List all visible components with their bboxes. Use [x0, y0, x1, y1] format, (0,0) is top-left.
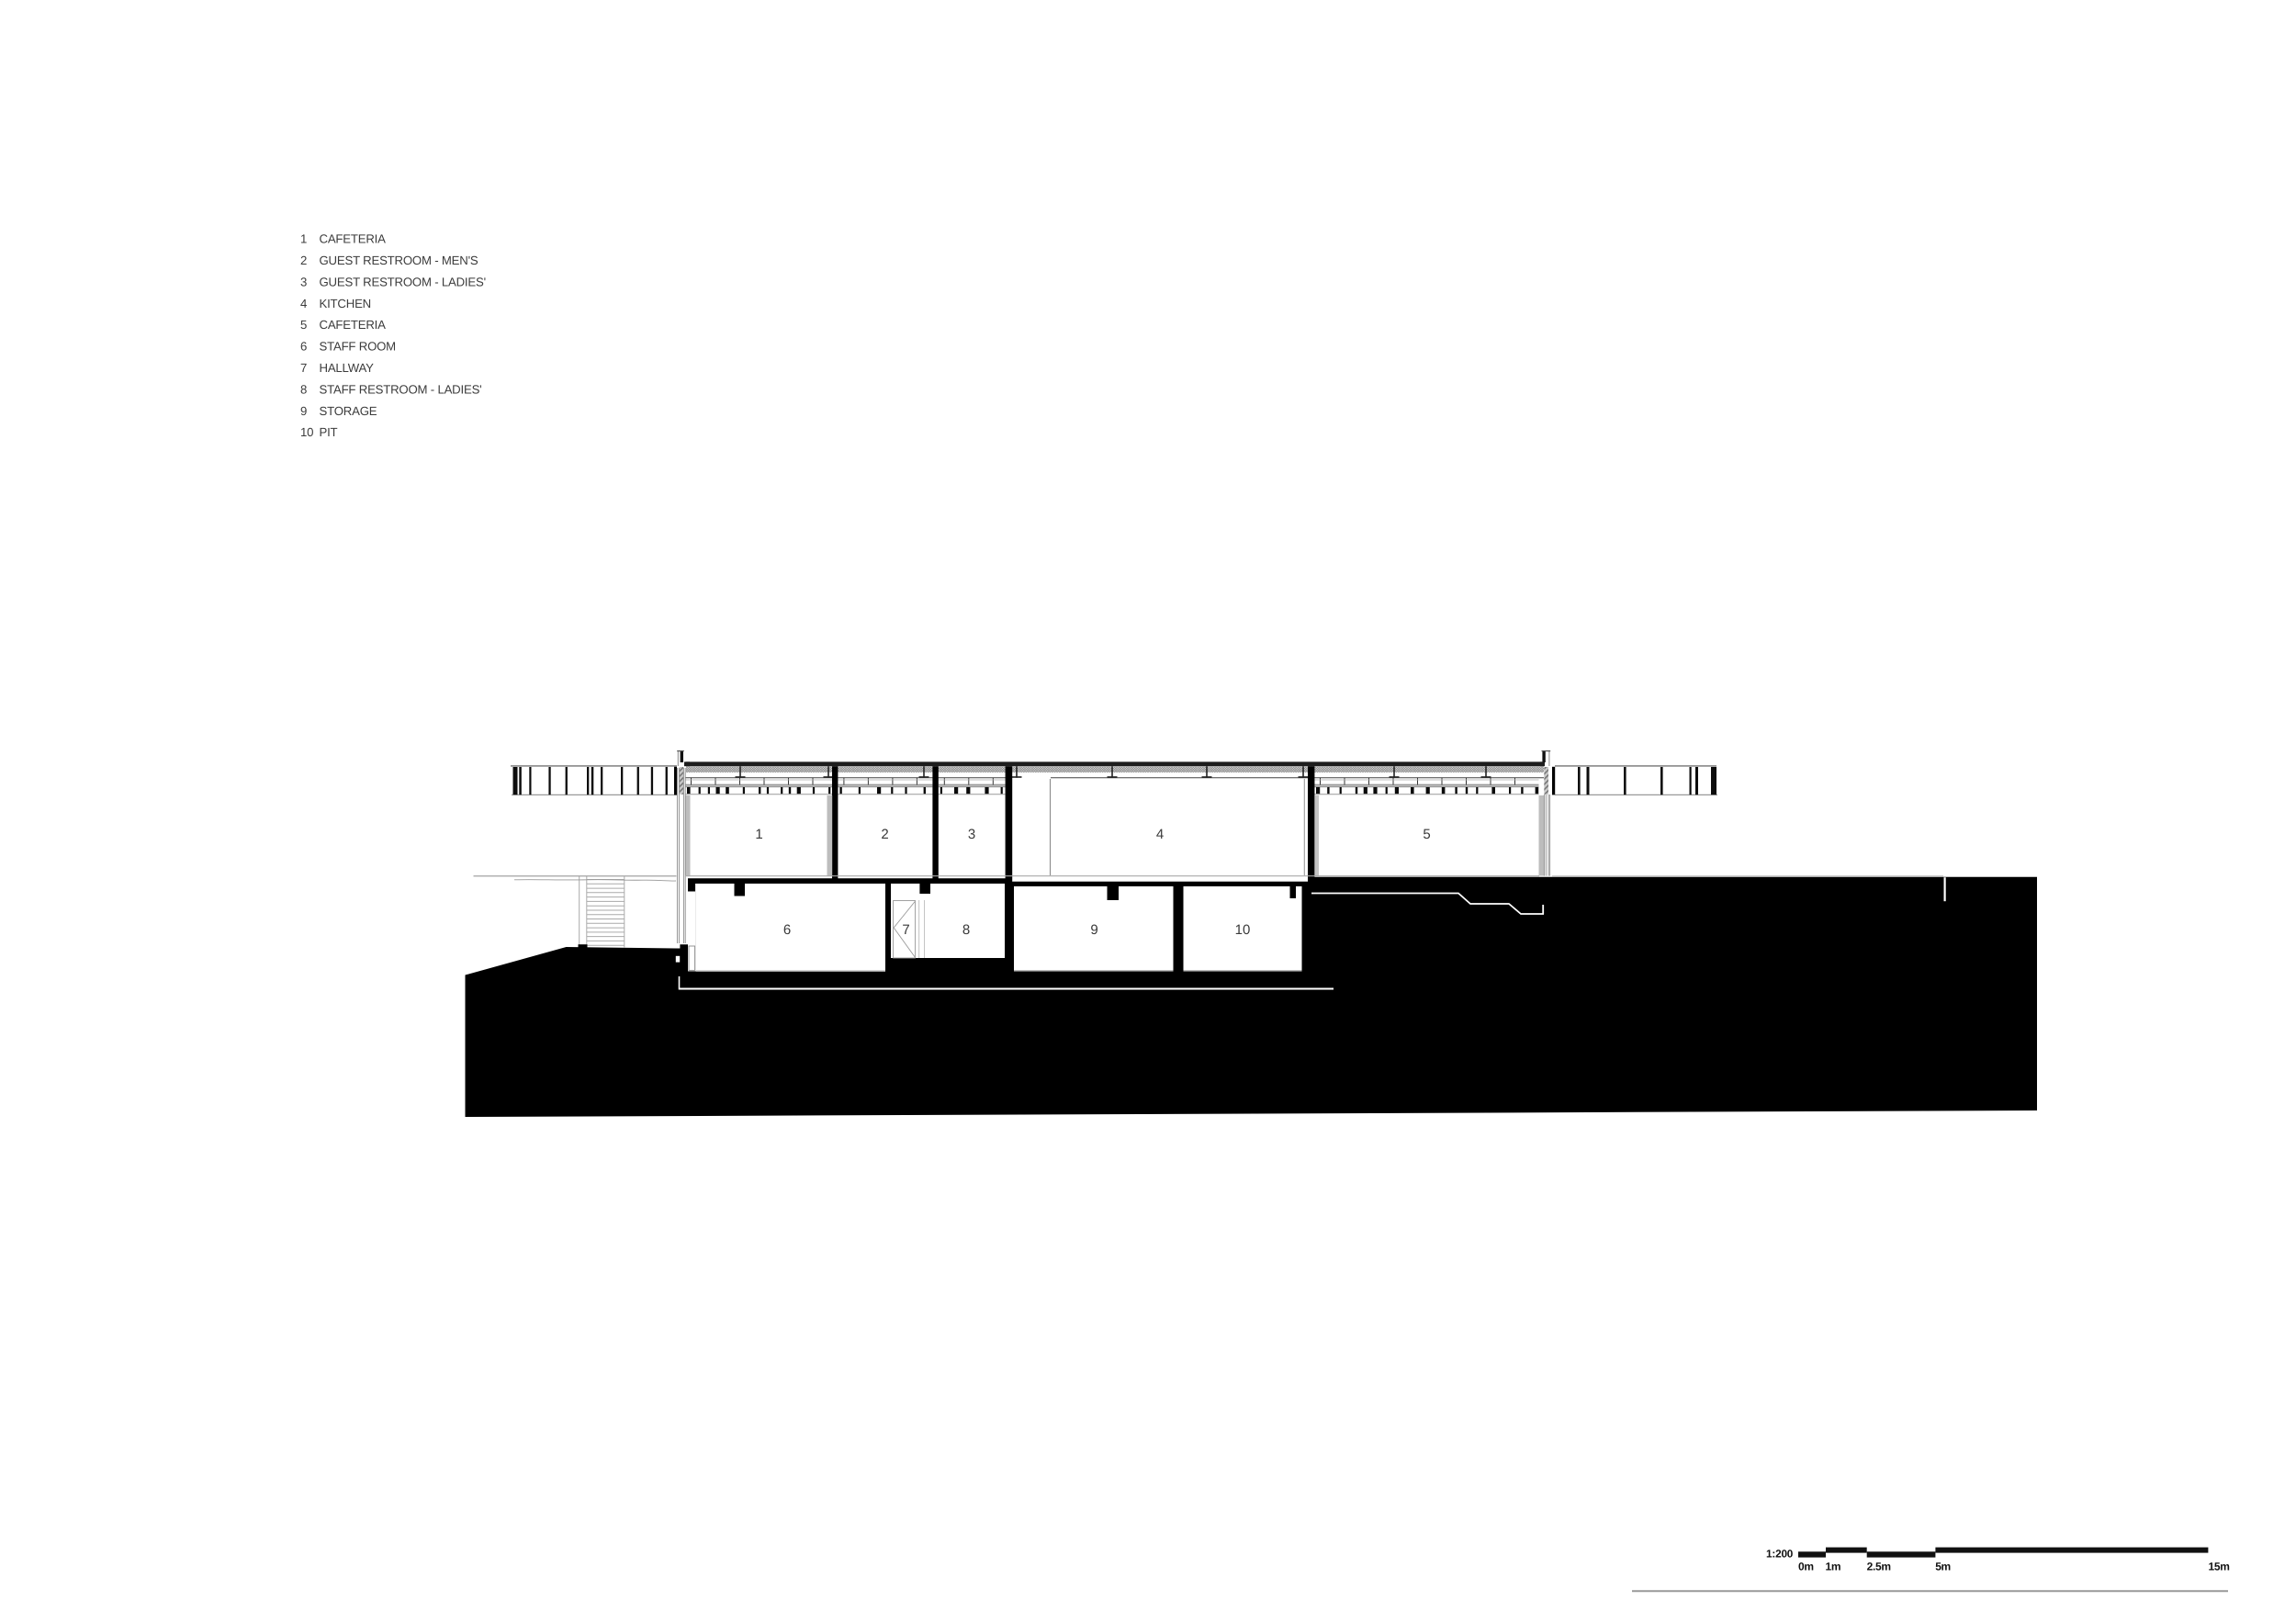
svg-text:2: 2 [881, 827, 888, 842]
svg-text:HALLWAY: HALLWAY [320, 361, 375, 375]
svg-text:CAFETERIA: CAFETERIA [320, 318, 387, 332]
svg-text:8: 8 [962, 922, 970, 938]
svg-text:9: 9 [1090, 922, 1097, 938]
svg-text:8: 8 [300, 382, 307, 396]
svg-text:4: 4 [1156, 827, 1164, 842]
svg-text:STAFF ROOM: STAFF ROOM [320, 340, 396, 354]
svg-text:GUEST RESTROOM - LADIES': GUEST RESTROOM - LADIES' [320, 275, 486, 288]
svg-text:6: 6 [300, 340, 307, 354]
svg-text:6: 6 [783, 922, 791, 938]
svg-text:3: 3 [968, 827, 975, 842]
svg-text:5m: 5m [1935, 1561, 1951, 1573]
svg-text:5: 5 [300, 318, 307, 332]
svg-text:1:200: 1:200 [1766, 1548, 1794, 1561]
svg-text:3: 3 [300, 275, 307, 288]
svg-text:4: 4 [300, 297, 307, 310]
svg-text:KITCHEN: KITCHEN [320, 297, 371, 310]
svg-text:1: 1 [300, 232, 307, 246]
svg-text:2: 2 [300, 254, 307, 267]
svg-text:7: 7 [300, 361, 307, 375]
svg-text:1m: 1m [1826, 1561, 1841, 1573]
svg-text:STORAGE: STORAGE [320, 404, 377, 418]
svg-text:PIT: PIT [320, 425, 338, 439]
svg-text:CAFETERIA: CAFETERIA [320, 232, 387, 246]
svg-text:7: 7 [902, 922, 909, 938]
svg-text:1: 1 [755, 827, 762, 842]
svg-text:GUEST RESTROOM - MEN'S: GUEST RESTROOM - MEN'S [320, 254, 478, 267]
svg-text:2.5m: 2.5m [1867, 1561, 1891, 1573]
svg-text:15m: 15m [2209, 1561, 2230, 1573]
svg-text:STAFF RESTROOM - LADIES': STAFF RESTROOM - LADIES' [320, 382, 482, 396]
svg-text:5: 5 [1423, 827, 1430, 842]
svg-text:10: 10 [1235, 922, 1251, 938]
svg-text:10: 10 [300, 425, 313, 439]
svg-text:0m: 0m [1798, 1561, 1814, 1573]
svg-text:9: 9 [300, 404, 307, 418]
